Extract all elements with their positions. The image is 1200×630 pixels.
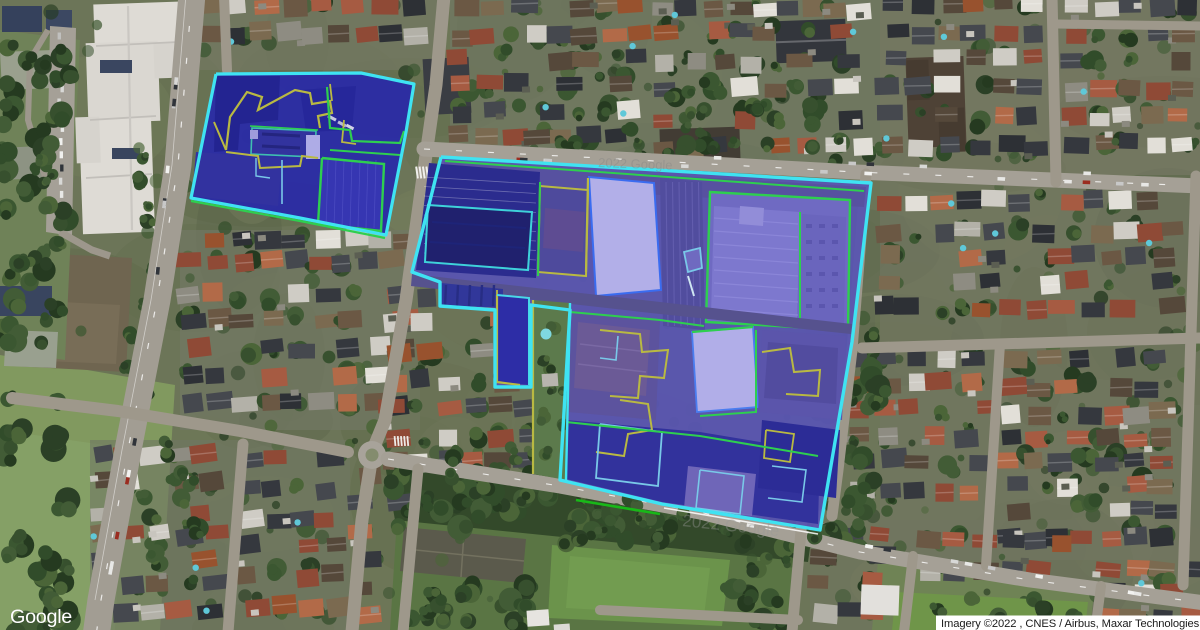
svg-text:Google: Google <box>10 606 72 628</box>
svg-text:Imagery ©2022 , CNES / Airbus,: Imagery ©2022 , CNES / Airbus, Maxar Tec… <box>941 618 1200 630</box>
svg-text:2022 Google: 2022 Google <box>598 155 673 173</box>
